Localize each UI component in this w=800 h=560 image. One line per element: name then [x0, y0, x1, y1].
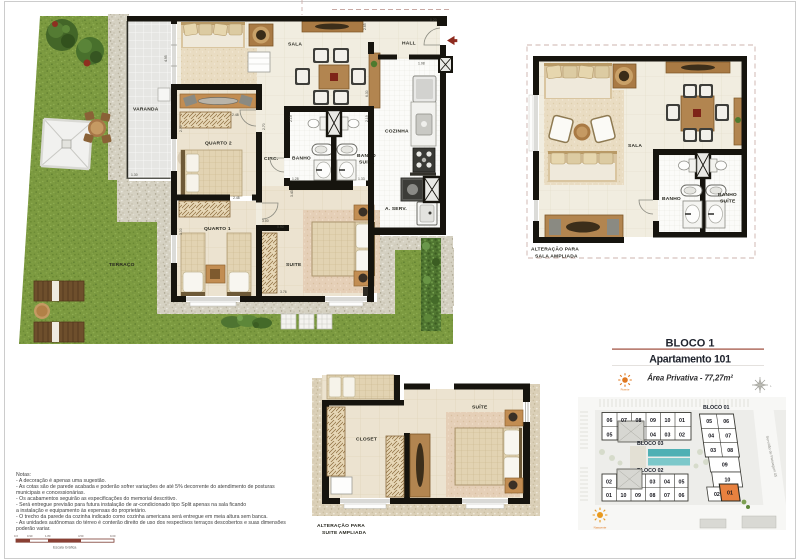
svg-text:poderão variar.: poderão variar.	[16, 526, 51, 532]
svg-text:1.33: 1.33	[358, 177, 365, 181]
svg-text:09: 09	[722, 463, 728, 469]
svg-text:07: 07	[621, 418, 627, 424]
svg-text:2.70: 2.70	[179, 125, 183, 132]
svg-text:1.08: 1.08	[418, 62, 425, 66]
svg-text:09: 09	[635, 493, 641, 499]
svg-text:02: 02	[714, 492, 720, 498]
svg-text:10: 10	[724, 478, 730, 484]
svg-text:4.50: 4.50	[78, 534, 84, 538]
svg-text:06: 06	[723, 419, 729, 425]
svg-text:09: 09	[650, 418, 656, 424]
svg-text:COZINHA: COZINHA	[385, 129, 409, 135]
svg-text:6.30: 6.30	[365, 90, 369, 97]
svg-text:04: 04	[708, 434, 714, 440]
svg-text:BANHO: BANHO	[292, 156, 311, 162]
svg-text:3.76: 3.76	[280, 290, 287, 294]
svg-text:0.20: 0.20	[430, 18, 437, 22]
svg-text:10: 10	[621, 493, 627, 499]
svg-text:2.48: 2.48	[233, 196, 240, 200]
svg-text:SALA AMPLIADA: SALA AMPLIADA	[535, 254, 578, 260]
svg-text:Apartamento 101: Apartamento 101	[649, 354, 731, 366]
svg-text:3.00: 3.00	[262, 219, 269, 223]
svg-text:BLOCO 01: BLOCO 01	[703, 405, 730, 411]
svg-text:Escala Gráfica: Escala Gráfica	[53, 546, 76, 550]
svg-text:2.19: 2.19	[289, 115, 293, 122]
svg-text:07: 07	[725, 434, 731, 440]
svg-text:1.28: 1.28	[292, 177, 299, 181]
svg-text:4.95: 4.95	[164, 55, 168, 62]
svg-text:08: 08	[650, 493, 656, 499]
svg-text:BANHO: BANHO	[662, 196, 681, 202]
svg-text:05: 05	[607, 433, 613, 439]
svg-text:05: 05	[679, 480, 685, 486]
svg-text:SUITE AMPLIADA: SUITE AMPLIADA	[322, 530, 366, 536]
svg-text:Área Privativa - 77,27m²: Área Privativa - 77,27m²	[646, 374, 733, 383]
svg-text:3.00: 3.00	[179, 228, 183, 235]
svg-text:03: 03	[710, 448, 716, 454]
svg-text:9.00: 9.00	[110, 534, 116, 538]
svg-text:1.80: 1.80	[45, 534, 51, 538]
svg-text:01: 01	[679, 418, 685, 424]
svg-text:QUARTO 1: QUARTO 1	[204, 226, 231, 232]
svg-text:2.65: 2.65	[363, 23, 367, 30]
svg-text:0.0: 0.0	[14, 534, 18, 538]
svg-text:05: 05	[706, 419, 712, 425]
svg-text:03: 03	[650, 480, 656, 486]
svg-text:CIRC.: CIRC.	[264, 156, 279, 162]
svg-text:SUITE: SUITE	[286, 262, 302, 268]
svg-text:0.90: 0.90	[277, 225, 284, 229]
svg-text:2.70: 2.70	[262, 123, 266, 130]
svg-text:BANHO: BANHO	[718, 192, 737, 198]
svg-text:TERRAÇO: TERRAÇO	[109, 262, 135, 268]
svg-text:A. SERV.: A. SERV.	[385, 206, 407, 212]
svg-text:06: 06	[679, 493, 685, 499]
svg-text:Nascente: Nascente	[594, 526, 607, 530]
svg-text:ALTERAÇÃO PARA: ALTERAÇÃO PARA	[531, 246, 579, 253]
svg-text:07: 07	[664, 493, 670, 499]
svg-text:0.90: 0.90	[27, 534, 33, 538]
svg-text:BLOCO 1: BLOCO 1	[666, 338, 715, 350]
svg-text:2.48: 2.48	[232, 113, 239, 117]
svg-text:02: 02	[606, 480, 612, 486]
svg-text:SALA: SALA	[628, 143, 642, 149]
svg-text:Poente: Poente	[621, 388, 630, 392]
svg-text:01: 01	[606, 493, 612, 499]
svg-text:SALA: SALA	[288, 42, 302, 48]
svg-text:04: 04	[650, 433, 656, 439]
svg-text:CLOSET: CLOSET	[356, 437, 377, 443]
svg-text:02: 02	[679, 433, 685, 439]
svg-text:08: 08	[636, 418, 642, 424]
svg-text:3.43: 3.43	[290, 190, 294, 197]
svg-text:QUARTO 2: QUARTO 2	[205, 141, 232, 147]
svg-text:HALL: HALL	[402, 41, 416, 47]
svg-text:06: 06	[607, 418, 613, 424]
svg-text:01: 01	[727, 491, 733, 497]
svg-text:- As unidades autônomas do tér: - As unidades autônomas do térreo é cont…	[16, 520, 286, 526]
svg-text:BLOCO 03: BLOCO 03	[637, 441, 664, 447]
svg-text:03: 03	[665, 433, 671, 439]
svg-text:VARANDA: VARANDA	[133, 107, 159, 113]
svg-text:04: 04	[664, 480, 670, 486]
svg-text:2.19: 2.19	[365, 115, 369, 122]
svg-text:ALTERAÇÃO PARA: ALTERAÇÃO PARA	[317, 522, 365, 529]
svg-text:1.30: 1.30	[131, 173, 138, 177]
svg-text:08: 08	[727, 448, 733, 454]
svg-text:10: 10	[665, 418, 671, 424]
